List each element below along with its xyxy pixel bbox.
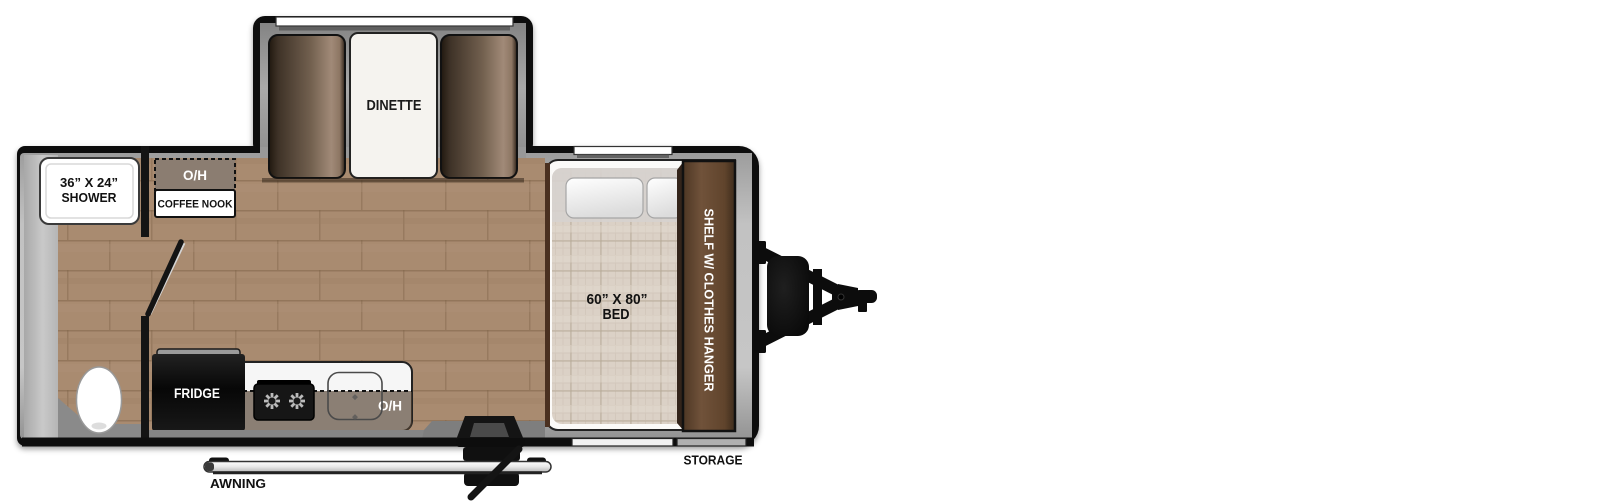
- svg-text:DINETTE: DINETTE: [367, 98, 422, 114]
- svg-text:FRIDGE: FRIDGE: [174, 386, 220, 401]
- svg-text:AWNING: AWNING: [210, 476, 266, 491]
- svg-text:BED: BED: [603, 307, 630, 323]
- svg-text:SHELF W/ CLOTHES HANGER: SHELF W/ CLOTHES HANGER: [702, 209, 717, 393]
- svg-text:COFFEE NOOK: COFFEE NOOK: [158, 199, 234, 211]
- svg-text:60” X 80”: 60” X 80”: [587, 292, 648, 308]
- svg-text:SHOWER: SHOWER: [62, 190, 118, 205]
- svg-text:STORAGE: STORAGE: [684, 454, 743, 468]
- svg-text:O/H: O/H: [183, 168, 207, 183]
- svg-text:36” X 24”: 36” X 24”: [60, 175, 118, 190]
